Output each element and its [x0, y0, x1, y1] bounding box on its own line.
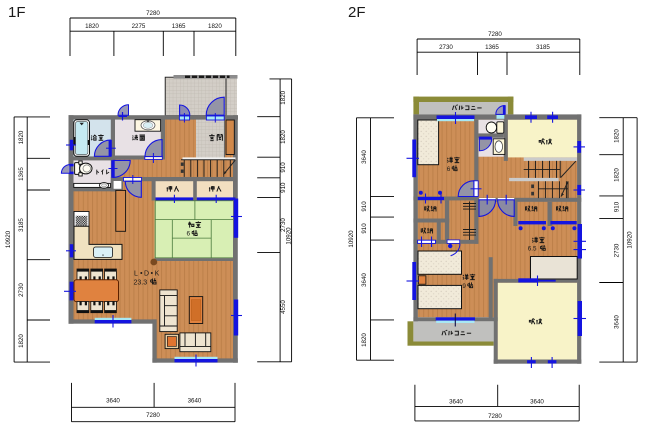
svg-text:3640: 3640	[361, 150, 368, 164]
svg-text:3640: 3640	[530, 399, 544, 406]
svg-text:910: 910	[361, 223, 368, 234]
svg-text:910: 910	[280, 182, 287, 193]
svg-text:3640: 3640	[188, 398, 202, 405]
svg-text:10920: 10920	[5, 230, 12, 248]
svg-text:1365: 1365	[18, 167, 25, 181]
svg-text:4550: 4550	[280, 300, 287, 314]
svg-text:D: D	[144, 271, 149, 278]
svg-text:2F: 2F	[348, 4, 366, 21]
svg-text:910: 910	[361, 201, 368, 212]
svg-text:7280: 7280	[488, 413, 502, 420]
svg-text:3640: 3640	[614, 315, 621, 329]
svg-text:L: L	[134, 271, 138, 278]
svg-text:910: 910	[614, 201, 621, 212]
svg-text:6.5: 6.5	[528, 246, 537, 253]
svg-text:1820: 1820	[85, 23, 99, 30]
svg-text:K: K	[155, 271, 160, 278]
svg-text:2730: 2730	[614, 243, 621, 257]
svg-text:6: 6	[187, 231, 191, 238]
svg-text:6: 6	[447, 166, 451, 173]
svg-text:7280: 7280	[488, 31, 502, 38]
svg-text:2730: 2730	[18, 283, 25, 297]
svg-text:1820: 1820	[18, 130, 25, 144]
svg-text:1365: 1365	[485, 44, 499, 51]
svg-text:910: 910	[280, 162, 287, 173]
svg-text:1820: 1820	[614, 168, 621, 182]
svg-text:1820: 1820	[280, 130, 287, 144]
svg-text:3640: 3640	[106, 398, 120, 405]
svg-text:3640: 3640	[361, 273, 368, 287]
svg-text:7280: 7280	[146, 412, 160, 419]
svg-text:1820: 1820	[280, 90, 287, 104]
svg-text:1820: 1820	[208, 23, 222, 30]
svg-text:10920: 10920	[627, 231, 634, 249]
svg-text:10920: 10920	[286, 227, 293, 245]
svg-text:1820: 1820	[614, 129, 621, 143]
svg-text:3640: 3640	[449, 399, 463, 406]
svg-text:1820: 1820	[361, 333, 368, 347]
svg-text:3185: 3185	[18, 218, 25, 232]
svg-text:2275: 2275	[132, 23, 146, 30]
svg-text:1820: 1820	[18, 334, 25, 348]
svg-text:23.3: 23.3	[134, 280, 148, 287]
svg-text:1365: 1365	[172, 23, 186, 30]
svg-text:10920: 10920	[348, 230, 355, 248]
svg-text:9: 9	[462, 283, 466, 290]
svg-text:7280: 7280	[146, 10, 160, 17]
svg-text:3185: 3185	[536, 44, 550, 51]
svg-text:1F: 1F	[8, 4, 26, 21]
svg-text:2730: 2730	[439, 44, 453, 51]
